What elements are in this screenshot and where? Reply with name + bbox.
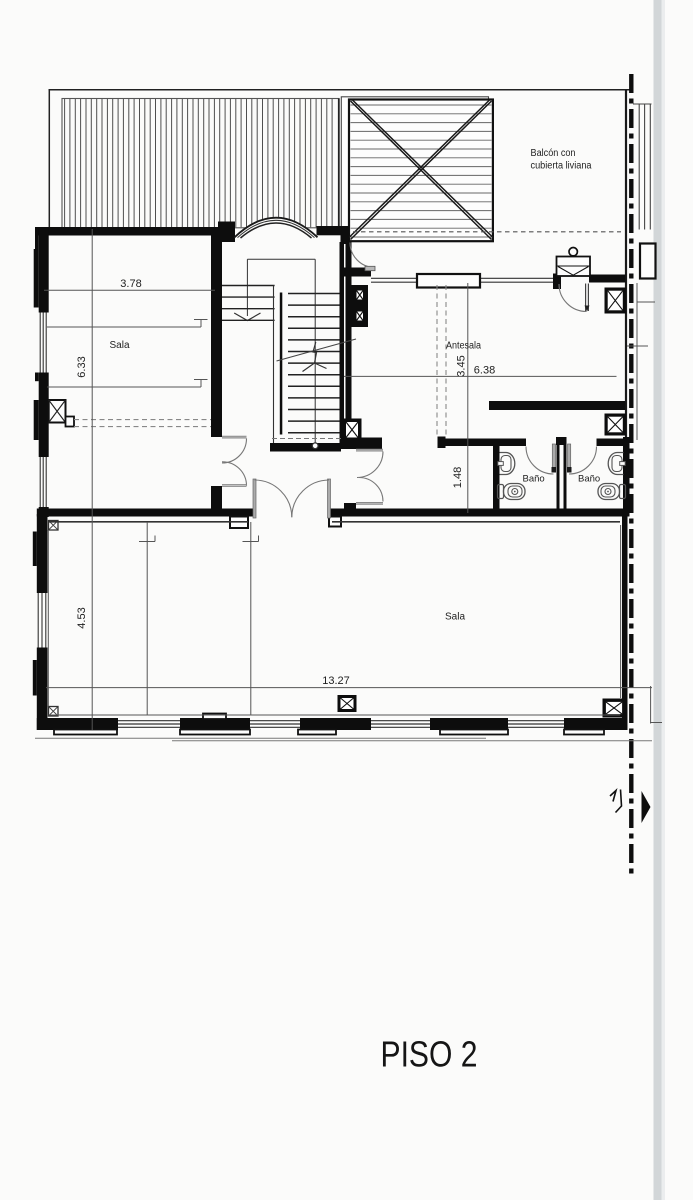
svg-text:4.53: 4.53 bbox=[76, 607, 88, 628]
svg-text:Baño: Baño bbox=[578, 474, 600, 485]
svg-text:1.48: 1.48 bbox=[452, 467, 464, 488]
svg-text:cubierta liviana: cubierta liviana bbox=[531, 161, 592, 172]
svg-text:Baño: Baño bbox=[523, 474, 545, 485]
svg-text:6.38: 6.38 bbox=[474, 365, 495, 377]
svg-text:Sala: Sala bbox=[110, 340, 130, 351]
svg-text:Sala: Sala bbox=[445, 612, 465, 623]
svg-text:PISO 2: PISO 2 bbox=[381, 1034, 478, 1075]
svg-text:3.45: 3.45 bbox=[456, 355, 468, 376]
svg-text:6.33: 6.33 bbox=[76, 356, 88, 377]
svg-text:13.27: 13.27 bbox=[322, 675, 350, 687]
svg-text:3.78: 3.78 bbox=[120, 278, 141, 290]
svg-text:Balcón con: Balcón con bbox=[531, 148, 576, 159]
svg-text:Antesala: Antesala bbox=[446, 341, 481, 352]
